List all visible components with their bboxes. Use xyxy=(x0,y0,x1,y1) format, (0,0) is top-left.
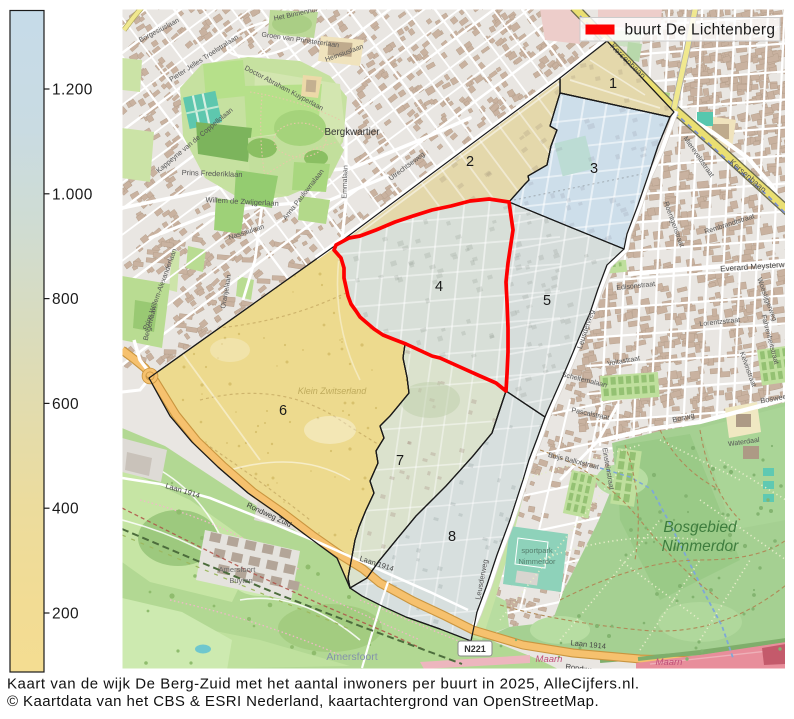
svg-text:1.000: 1.000 xyxy=(52,186,93,203)
svg-text:1: 1 xyxy=(609,76,617,92)
svg-text:buurt De Lichtenberg: buurt De Lichtenberg xyxy=(625,22,776,39)
svg-text:5: 5 xyxy=(543,293,551,309)
svg-text:Klein Zwitserland: Klein Zwitserland xyxy=(298,386,368,396)
svg-text:600: 600 xyxy=(52,396,79,413)
svg-text:Maarn: Maarn xyxy=(536,654,563,665)
svg-text:200: 200 xyxy=(52,606,79,623)
svg-text:8: 8 xyxy=(448,529,456,545)
svg-text:400: 400 xyxy=(52,501,79,518)
svg-text:800: 800 xyxy=(52,291,79,308)
svg-text:sportpark: sportpark xyxy=(521,546,553,555)
svg-text:Amersfoort: Amersfoort xyxy=(219,565,257,574)
svg-text:1.200: 1.200 xyxy=(52,82,93,99)
svg-text:Emmalaan: Emmalaan xyxy=(341,165,349,199)
svg-text:Amersfoort: Amersfoort xyxy=(326,651,377,663)
svg-text:Bosgebied: Bosgebied xyxy=(663,519,738,536)
svg-text:Nimmerdor: Nimmerdor xyxy=(518,557,556,566)
svg-text:© Kaartdata van het CBS & ESRI: © Kaartdata van het CBS & ESRI Nederland… xyxy=(7,693,599,710)
svg-text:4: 4 xyxy=(435,279,443,295)
svg-text:3: 3 xyxy=(590,161,598,177)
svg-text:2: 2 xyxy=(466,154,474,170)
svg-text:Maarn: Maarn xyxy=(656,657,683,668)
svg-text:7: 7 xyxy=(396,453,404,469)
svg-text:Bergkwartier: Bergkwartier xyxy=(325,127,381,138)
svg-text:N221: N221 xyxy=(464,644,486,654)
svg-text:Nimmerdor: Nimmerdor xyxy=(662,538,739,555)
svg-text:Kaart van de wijk De Berg-Zuid: Kaart van de wijk De Berg-Zuid met het a… xyxy=(7,676,640,693)
svg-text:6: 6 xyxy=(279,403,287,419)
svg-text:Buyten: Buyten xyxy=(229,576,252,585)
